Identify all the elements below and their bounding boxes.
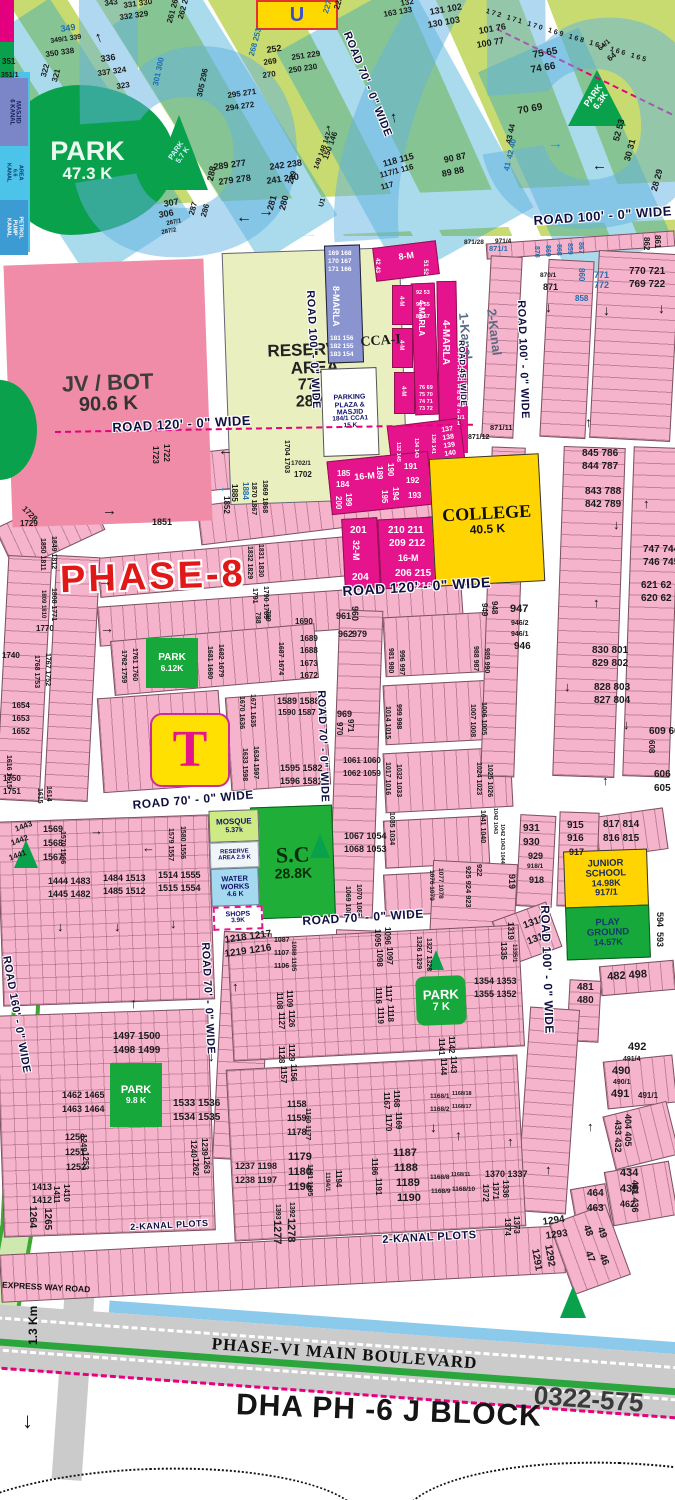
plot-number: 1371 bbox=[491, 1182, 499, 1200]
plot-number: 1688 bbox=[300, 647, 318, 655]
direction-arrow-icon: ↓ bbox=[658, 301, 665, 315]
plot-number: 996 997 bbox=[398, 650, 405, 675]
plot-number: 969 bbox=[337, 710, 352, 719]
plot-number: 1410 bbox=[62, 1184, 70, 1202]
plot-number: 1670 1636 bbox=[238, 696, 245, 729]
direction-arrow-icon: ↓ bbox=[613, 518, 620, 531]
plot-number: 1498 1499 bbox=[113, 1046, 160, 1056]
plot-number: 930 bbox=[523, 838, 540, 848]
jv-bot-text: JV / BOT bbox=[61, 369, 153, 395]
plot-number: 770 721 bbox=[629, 267, 665, 277]
plot-number: 92 53 bbox=[416, 291, 430, 297]
park-6-12-label: PARK6.12K bbox=[158, 653, 186, 672]
plot-number: 1740 bbox=[2, 652, 20, 660]
plot-number: 32-M bbox=[351, 540, 360, 561]
plot-number: 461 436 bbox=[630, 1180, 639, 1213]
plot-number: 199 bbox=[344, 493, 352, 506]
plot-number: 1484 1513 bbox=[103, 874, 146, 883]
plot-number: 1445 1482 bbox=[48, 890, 91, 899]
plot-number: 1870 1867 bbox=[250, 482, 257, 515]
plot-number: 1188 bbox=[394, 1163, 418, 1174]
plot-number: 1761 1760 bbox=[131, 648, 138, 681]
petrol-pump-text: PETROL PUMP KANAL bbox=[5, 213, 22, 241]
plot-number: 1129 bbox=[287, 1044, 295, 1061]
feature-parking-plaza: PARKINGPLAZA &MASJID184/1 CCA115 K bbox=[320, 367, 379, 457]
plot-number: 132 145 bbox=[395, 442, 401, 462]
plot-number: 490 bbox=[612, 1066, 630, 1077]
plot-number: 1681 1680 bbox=[206, 646, 213, 679]
direction-arrow-icon: ↑ bbox=[593, 596, 600, 609]
direction-arrow-icon: ↓ bbox=[603, 303, 610, 317]
plot-number: 788 bbox=[254, 612, 261, 624]
direction-arrow-icon: ← bbox=[218, 443, 233, 458]
direction-arrow-icon: ↑ bbox=[455, 1128, 462, 1142]
plot-number: 862 bbox=[642, 237, 650, 250]
plot-number: 845 786 bbox=[582, 449, 618, 459]
plot-number: 1463 1464 bbox=[62, 1105, 105, 1114]
plot-number: 1534 1535 bbox=[173, 1113, 220, 1123]
feature-college: COLLEGE40.5 K bbox=[429, 453, 546, 587]
plot-number: 1167 bbox=[382, 1092, 390, 1109]
plot-number: 491 bbox=[611, 1089, 629, 1100]
direction-arrow-icon: → bbox=[548, 136, 563, 151]
reserve-area-29-text: AREA 2.9 K bbox=[218, 854, 251, 861]
plot-number: 1702 bbox=[294, 471, 312, 479]
plot-number: 1187 bbox=[393, 1148, 417, 1159]
plot-number: 1335 bbox=[499, 942, 507, 960]
plot-number: 771 bbox=[594, 271, 609, 280]
plot-number: 946/2 bbox=[511, 620, 529, 627]
mosque-label: MOSQUE5.37k bbox=[216, 818, 252, 835]
plot-number: 75 70 bbox=[419, 393, 433, 399]
plot-number: 1262 bbox=[191, 1158, 199, 1176]
plot-number: 1240 bbox=[189, 1140, 197, 1158]
direction-arrow-icon: ← bbox=[592, 158, 607, 173]
plot-number: 1062 1059 bbox=[343, 770, 381, 778]
plot-number: 492 bbox=[628, 1042, 646, 1053]
plot-block bbox=[226, 1054, 527, 1241]
plot-number: 1249 bbox=[79, 1134, 87, 1152]
plot-number: 1596 1581 bbox=[280, 777, 323, 786]
plot-number: 4-M bbox=[400, 386, 406, 396]
plot-number: 1041 1040 bbox=[479, 810, 486, 843]
feature-play-ground: PLAYGROUND14.57K bbox=[565, 905, 651, 961]
plot-number: 961 bbox=[336, 612, 351, 621]
plot-number: 42 43 bbox=[374, 258, 380, 273]
plot-number: 1374 bbox=[503, 1218, 511, 1236]
plot-number: 925 924 923 bbox=[465, 866, 473, 908]
plot-number: 1370 1337 bbox=[485, 1170, 528, 1179]
plot-number: 915 bbox=[567, 821, 584, 831]
plot-number: 1265 bbox=[42, 1208, 52, 1230]
plot-number: 1767 1752 bbox=[44, 653, 51, 686]
feature-shopping-center: S.C28.8K bbox=[250, 805, 336, 920]
feature-park-7k: PARK7 K bbox=[415, 975, 467, 1026]
plot-number: 1014 1015 bbox=[384, 706, 391, 739]
feature-park-9-8: PARK9.8 K bbox=[110, 1063, 162, 1127]
plot-number: CCA-I bbox=[360, 333, 401, 350]
direction-arrow-icon: ↓ bbox=[114, 920, 121, 933]
plot-number: 946 bbox=[514, 642, 531, 652]
plot-number: 1238 1197 bbox=[235, 1176, 277, 1185]
plot-number: 1616 1615 bbox=[5, 755, 12, 788]
plot-number: 946/1 bbox=[511, 631, 529, 638]
plot-number: 1142 bbox=[447, 1036, 455, 1053]
plot-number: 1264 bbox=[27, 1206, 37, 1228]
direction-arrow-icon: → bbox=[102, 503, 117, 518]
play-ground-text: 14.57K bbox=[587, 937, 630, 948]
plot-number: 871/1 bbox=[489, 245, 508, 253]
plot-number: 949 bbox=[480, 603, 488, 616]
plot-number: 1170 bbox=[384, 1114, 392, 1131]
plot-number: 871/28 bbox=[464, 240, 484, 247]
plot-number: 1106 bbox=[274, 963, 289, 970]
plot-number: 481 bbox=[577, 983, 594, 993]
plot-number: 1032 1033 bbox=[395, 764, 402, 797]
plot-number: 1068 1053 bbox=[344, 845, 387, 854]
plot-number: 1392 bbox=[288, 1202, 295, 1218]
plot-number: 917 bbox=[569, 848, 584, 857]
plot-number: 816 815 bbox=[603, 834, 639, 844]
plot-number: 1850 1811 bbox=[39, 538, 46, 571]
plot-number: 1808 1771 bbox=[50, 588, 57, 621]
plot-number: 136 141 bbox=[430, 434, 436, 454]
plot-number: 971 bbox=[346, 719, 354, 732]
plot-number: 1704 1703 bbox=[283, 440, 290, 473]
plot-number: 1119 bbox=[376, 1007, 384, 1024]
direction-arrow-icon: ↑ bbox=[643, 497, 650, 510]
plot-number: 8-MARLA bbox=[331, 286, 340, 327]
plot-number: 1689 bbox=[300, 635, 318, 643]
feature-reserve-area-29: RESERVEAREA 2.9 K bbox=[210, 841, 260, 869]
plot-number: 1682 1679 bbox=[217, 644, 224, 677]
plot-number: 1095 bbox=[373, 929, 381, 947]
plot-number: 404 405 bbox=[623, 1114, 632, 1147]
plot-number: 1118 bbox=[386, 1005, 394, 1022]
plot-number: 1768 1753 bbox=[33, 655, 40, 688]
plot-number: 169 168 bbox=[328, 251, 352, 258]
shopping-center-label: S.C28.8K bbox=[274, 842, 313, 881]
plot-number: 1088 1105 bbox=[290, 941, 297, 971]
plot-number: 1097 bbox=[385, 947, 393, 965]
plot-number: 861 bbox=[653, 235, 661, 248]
plot-number: 1168/1 bbox=[430, 1094, 450, 1101]
plot-number: 463 bbox=[587, 1204, 604, 1214]
plot-number: 871/12 bbox=[468, 434, 489, 441]
plot-number: 1168/10 bbox=[452, 1187, 475, 1194]
plot-number: 858 bbox=[575, 295, 588, 303]
plot-number: 1319 bbox=[506, 922, 514, 940]
plot-number: 772 bbox=[594, 281, 609, 290]
plot-number: 464 bbox=[587, 1189, 604, 1199]
plot-number: 88 57 bbox=[416, 315, 430, 321]
plot-number: 189 bbox=[375, 466, 383, 479]
feature-t-watermark-logo: T bbox=[150, 713, 230, 787]
direction-arrow-icon: → bbox=[100, 621, 114, 635]
plot-number: 1277 bbox=[271, 1220, 282, 1244]
plot-number: 1143 bbox=[449, 1056, 457, 1073]
plot-number: 1849 1812 bbox=[50, 536, 57, 569]
plot-number: 1533 1536 bbox=[173, 1099, 220, 1109]
direction-arrow-icon: → bbox=[98, 574, 112, 588]
plot-block bbox=[516, 1007, 580, 1215]
plot-number: 209 212 bbox=[389, 539, 425, 549]
plot-number: 1126 bbox=[287, 1010, 295, 1027]
plot-number: 185 bbox=[337, 470, 350, 478]
feature-mosque: MOSQUE5.37k bbox=[208, 809, 259, 843]
plot-number: 1194/1 bbox=[324, 1172, 331, 1192]
plot-number: 490/1 bbox=[613, 1079, 631, 1086]
plot-number: 1580 1556 bbox=[179, 826, 186, 859]
plot-number: 1462 1465 bbox=[62, 1091, 105, 1100]
water-works-text: 4.6 K bbox=[221, 891, 250, 899]
plot-number: 842 789 bbox=[585, 500, 621, 510]
plot-number: 594 bbox=[655, 912, 664, 927]
plot-number: 1412 bbox=[32, 1196, 52, 1205]
plot-number: 1336 bbox=[501, 1180, 509, 1198]
plot-number: 181 156 bbox=[330, 336, 354, 343]
plot-number: 195 bbox=[380, 490, 388, 503]
feature-area-6-6-kanal: AREA 6.6 KANAL bbox=[0, 148, 28, 198]
plot-number: 606 bbox=[654, 770, 671, 780]
distance-label: 1.3 Km bbox=[26, 1306, 40, 1345]
plot-number: 988 987 bbox=[472, 646, 479, 671]
plot-number: 1076 1079 bbox=[428, 870, 435, 901]
direction-arrow-icon: ↓ bbox=[623, 718, 630, 731]
plot-number: 1168/18 bbox=[452, 1092, 472, 1098]
plot-number: 1791 bbox=[251, 588, 258, 604]
plot-number: 769 722 bbox=[629, 280, 665, 290]
plot-number: 859 bbox=[566, 243, 573, 255]
plot-number: 1141 bbox=[437, 1038, 445, 1055]
shopping-center-text: S.C bbox=[274, 842, 312, 866]
plot-number: 1157 bbox=[279, 1066, 287, 1083]
direction-arrow-icon: ↑ bbox=[545, 1163, 552, 1176]
plot-number: 1006 1005 bbox=[480, 702, 487, 735]
plot-number: 1770 bbox=[36, 625, 54, 633]
plot-number: 201 bbox=[350, 526, 367, 536]
plot-number: 1326 1329 bbox=[415, 936, 422, 969]
plot-number: 1869 1868 bbox=[261, 480, 268, 513]
plot-number: 1191 bbox=[374, 1178, 382, 1195]
plot-number: 929 bbox=[528, 852, 543, 861]
plot-number: 16-M bbox=[398, 554, 419, 563]
plot-number: 962 bbox=[338, 630, 353, 639]
plot-number: 948 bbox=[490, 601, 498, 614]
plot-number: 1168/8 bbox=[430, 1175, 450, 1182]
plot-number: 1017 1016 bbox=[384, 762, 391, 795]
direction-arrow-icon: ← bbox=[218, 480, 233, 495]
shops-label: SHOPS3.9K bbox=[225, 910, 250, 925]
mosque-text: 5.37k bbox=[216, 826, 252, 835]
plot-number: 1253 bbox=[81, 1152, 89, 1170]
plot-number: 970 bbox=[335, 722, 343, 735]
direction-arrow-icon: ↓ bbox=[430, 1120, 437, 1134]
map-deco bbox=[398, 1454, 675, 1500]
direction-arrow-icon: ↓ bbox=[564, 680, 571, 693]
feature-edge-magenta bbox=[0, 0, 14, 42]
plot-number: 1832 1829 bbox=[246, 546, 253, 579]
direction-arrow-icon: ↑ bbox=[232, 980, 239, 993]
plot-number: 870 bbox=[533, 246, 540, 258]
plot-number: 1186 bbox=[370, 1158, 378, 1175]
plot-number: 171 166 bbox=[328, 267, 352, 274]
plot-number: 916 bbox=[567, 834, 584, 844]
plot-number: 1751 bbox=[3, 788, 21, 796]
plot-number: 90 55 bbox=[416, 303, 430, 309]
plot-number: 1035 1034 bbox=[388, 812, 395, 845]
plot-number: 1077 1078 bbox=[437, 868, 444, 899]
plot-number: 200 bbox=[334, 496, 342, 509]
plot-number: 1413 bbox=[32, 1183, 52, 1192]
plot-number: 1108 bbox=[275, 992, 283, 1009]
plot-number: 1354 1353 bbox=[474, 977, 517, 986]
plot-number: 1393 bbox=[274, 1204, 281, 1220]
plot-number: 1168/9 bbox=[431, 1189, 451, 1196]
feature-junior-school: JUNIORSCHOOL14.98K917/1 bbox=[563, 849, 649, 909]
plot-number: 1116 bbox=[374, 987, 382, 1004]
plot-number: 870/1 bbox=[540, 273, 556, 280]
plot-number: 868 bbox=[555, 244, 562, 256]
plot-number: 1067 1054 bbox=[344, 832, 387, 841]
plot-number: 73 72 bbox=[419, 407, 433, 413]
plot-number: 830 801 bbox=[592, 646, 628, 656]
plot-number: 828 803 bbox=[594, 683, 630, 693]
plot-number: 190 bbox=[386, 463, 394, 476]
plot-number: 1168 bbox=[392, 1090, 400, 1107]
feature-petrol-pump: PETROL PUMP KANAL bbox=[0, 200, 28, 255]
plot-number: 193 bbox=[408, 492, 421, 500]
plot-number: 1107 bbox=[274, 950, 289, 957]
plot-number: 1128 bbox=[277, 1046, 285, 1063]
plot-number: 746 745 bbox=[643, 558, 675, 568]
plot-number: 919 bbox=[507, 874, 516, 889]
plot-number: 1181 1195 bbox=[306, 1164, 313, 1196]
plot-number: 434 bbox=[620, 1168, 638, 1179]
plot-number: 1654 bbox=[12, 702, 30, 710]
plot-number: 829 802 bbox=[592, 659, 628, 669]
park-6-12-text: 6.12K bbox=[158, 664, 186, 673]
plot-number: 981 980 bbox=[387, 648, 394, 673]
plot-number: 1372 bbox=[481, 1184, 489, 1202]
plot-number: 1579 1557 bbox=[167, 828, 174, 861]
plot-number: 931 bbox=[523, 824, 540, 834]
plot-number: 76 69 bbox=[419, 386, 433, 392]
plot-number: 1852 bbox=[222, 496, 230, 514]
plot-number: 1156 bbox=[289, 1064, 297, 1081]
plot-number: 1652 bbox=[12, 728, 30, 736]
park-9-8-text: 9.8 K bbox=[121, 1096, 151, 1105]
reserve-area-29-label: RESERVEAREA 2.9 K bbox=[218, 848, 251, 862]
plot-number: 843 788 bbox=[585, 487, 621, 497]
plot-number: 609 60 bbox=[649, 727, 675, 737]
plot-number: 1595 1582 bbox=[280, 764, 323, 773]
plot-number: 867 bbox=[577, 242, 584, 254]
area-6-6-kanal-label: AREA 6.6 KANAL bbox=[5, 159, 22, 187]
plot-number: 869 bbox=[544, 245, 551, 257]
plot-number: 871/11 bbox=[490, 424, 513, 432]
direction-arrow-icon: ↑ bbox=[585, 415, 592, 429]
petrol-pump-label: PETROL PUMP KANAL bbox=[5, 213, 22, 241]
plot-number: 871 bbox=[543, 283, 558, 292]
plot-number: 860 bbox=[577, 268, 585, 281]
plot-number: 1373 bbox=[512, 1216, 520, 1234]
plot-number: 605 bbox=[654, 784, 671, 794]
area-6-6-kanal-text: AREA 6.6 KANAL bbox=[5, 159, 22, 187]
plot-number: 74 71 bbox=[419, 400, 433, 406]
plot-number: 817 814 bbox=[603, 820, 639, 830]
plot-number: 1278 bbox=[285, 1218, 296, 1242]
shops-text: 3.9K bbox=[226, 918, 251, 926]
plot-number: 1702/1 bbox=[291, 461, 311, 468]
plot-number: 747 744 bbox=[643, 545, 675, 555]
plot-number: 844 787 bbox=[582, 462, 618, 472]
plot-number: 1589 1588 bbox=[277, 697, 320, 706]
direction-arrow-icon: ↑ bbox=[507, 1135, 514, 1148]
plot-number: 1087 bbox=[274, 937, 290, 944]
plot-number: 1614 bbox=[45, 786, 52, 802]
plot-number: 1189 bbox=[396, 1178, 420, 1189]
road-label: ROAD 70' - 0" WIDE bbox=[132, 787, 254, 812]
plot-number: 621 62 bbox=[641, 581, 672, 591]
plot-number: 1190 bbox=[397, 1193, 421, 1204]
plot-number: 827 804 bbox=[594, 696, 630, 706]
plot-number: 184 bbox=[336, 481, 349, 489]
direction-arrow-icon: ↓ bbox=[545, 300, 552, 314]
feature-masjid-6-kanal: MASJID 6 KANAL bbox=[0, 78, 28, 146]
plot-number: 1634 1597 bbox=[252, 746, 259, 779]
plot-number: 1673 bbox=[300, 660, 318, 668]
plot-number: 1098 bbox=[375, 949, 383, 967]
plot-number: 1263 bbox=[202, 1156, 210, 1174]
plot-number: 1570 1566 bbox=[59, 831, 66, 864]
t-watermark-logo-text: T bbox=[173, 723, 208, 778]
t-watermark-logo-label: T bbox=[173, 723, 208, 778]
plot-number: 1485 1512 bbox=[103, 887, 146, 896]
direction-arrow-icon: → bbox=[90, 824, 103, 837]
plot-number: 918 bbox=[529, 876, 544, 885]
plot-number: 620 62 bbox=[641, 594, 672, 604]
plot-number: 789 bbox=[264, 610, 271, 622]
plot-number: 480 bbox=[577, 996, 594, 1006]
plot-number: 491/4 bbox=[623, 1056, 641, 1063]
plot-number: 1729 bbox=[20, 520, 38, 528]
plot-number: 351 bbox=[2, 58, 15, 66]
plot-number: 1168/2 bbox=[430, 1107, 450, 1114]
plot-number: 1169 bbox=[394, 1112, 402, 1129]
plot-number: 1127 bbox=[277, 1012, 285, 1029]
plot-number: 989 990 bbox=[483, 648, 490, 673]
plot-number: 1144 bbox=[439, 1058, 447, 1075]
park-7k-text: PARK bbox=[423, 987, 459, 1002]
masjid-6-kanal-text: MASJID 6 KANAL bbox=[8, 99, 21, 125]
plot-number: 1168/11 bbox=[451, 1173, 470, 1179]
plot-number: 1615 bbox=[36, 788, 43, 804]
plot-number: 16-M bbox=[354, 471, 375, 482]
plot-number: 979 bbox=[352, 630, 367, 639]
direction-arrow-icon: ↓ bbox=[57, 920, 64, 933]
park-7k-label: PARK7 K bbox=[423, 987, 460, 1013]
junior-school-text: 917/1 bbox=[586, 888, 627, 899]
plot-number: 999 998 bbox=[395, 704, 402, 729]
plot-number: 1762 1759 bbox=[120, 650, 127, 683]
plot-number: 1851 bbox=[152, 518, 172, 527]
plot-number: 1160 1177 bbox=[304, 1108, 311, 1140]
plot-number: 1335/1 bbox=[511, 944, 517, 962]
plot-number: 947 bbox=[510, 604, 528, 615]
plot-number: 1722 bbox=[162, 444, 170, 462]
plot-number: 1831 1830 bbox=[257, 544, 264, 577]
